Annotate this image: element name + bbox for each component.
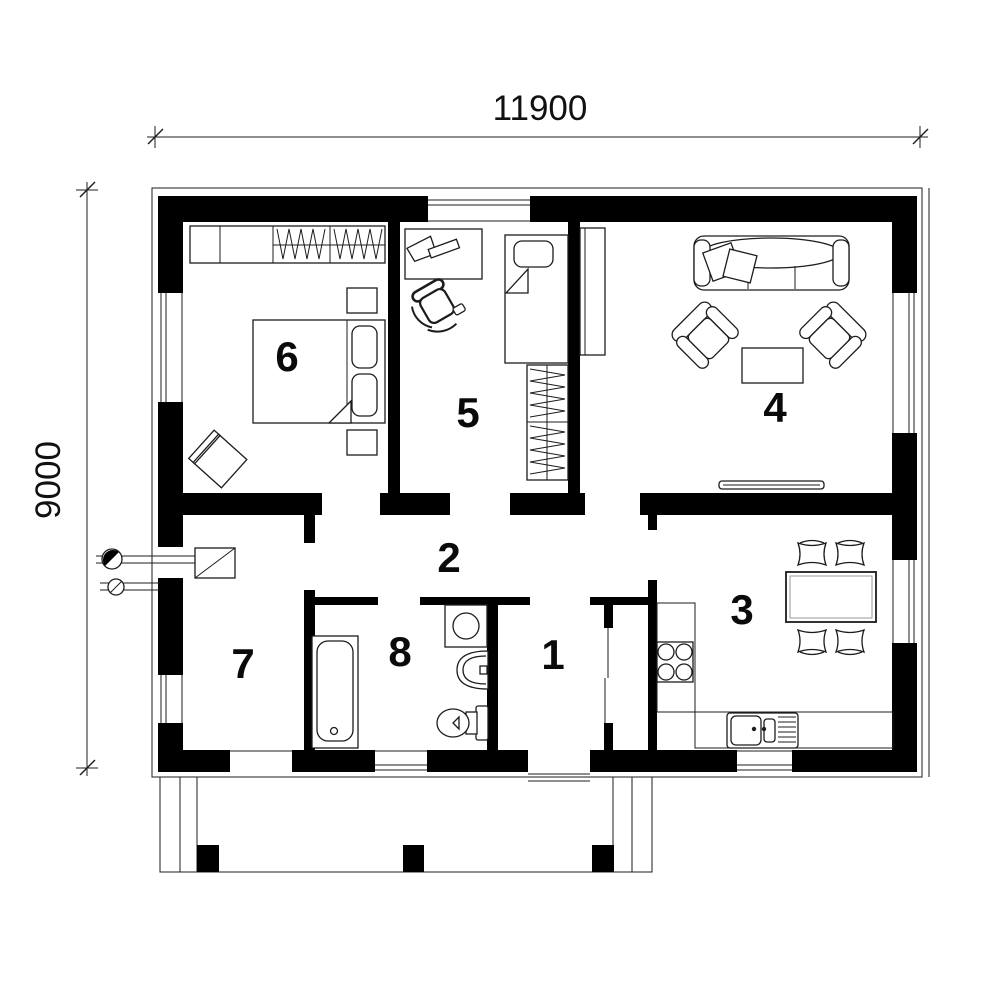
desk xyxy=(405,221,482,279)
room-label-2: 2 xyxy=(437,534,460,581)
window-right-room4 xyxy=(893,293,914,433)
sofa-pillow xyxy=(723,249,757,283)
window-bottom-room3 xyxy=(737,751,792,770)
double-bed xyxy=(253,320,385,423)
toilet xyxy=(437,706,488,740)
armchair-left xyxy=(668,298,741,371)
room-label-8: 8 xyxy=(388,628,411,675)
window-left-room6 xyxy=(161,293,182,402)
window-left-room7 xyxy=(161,675,182,723)
wall-room5-room4 xyxy=(568,222,580,493)
dimension-left: 9000 xyxy=(29,182,98,776)
nightstand xyxy=(347,288,377,313)
washbasin xyxy=(457,651,488,689)
armchair-right xyxy=(797,298,870,371)
boiler xyxy=(195,548,235,578)
closet-door-leaf xyxy=(605,628,608,723)
dining-chair xyxy=(836,630,864,655)
sofa xyxy=(694,236,849,290)
dimension-top: 11900 xyxy=(147,89,928,148)
tv xyxy=(719,481,824,489)
porch xyxy=(160,777,652,872)
room-label-7: 7 xyxy=(231,640,254,687)
room-label-3: 3 xyxy=(730,586,753,633)
dining-chair xyxy=(798,630,826,655)
porch-post xyxy=(403,845,424,872)
dining-chair xyxy=(798,541,826,566)
porch-post xyxy=(592,845,614,872)
window-bottom-room8 xyxy=(375,751,427,770)
wardrobe-room6 xyxy=(190,226,385,263)
dining-chair xyxy=(836,541,864,566)
washing-machine xyxy=(445,605,487,647)
window-right-room3 xyxy=(893,560,914,643)
tall-cabinet xyxy=(580,228,605,355)
room-label-4: 4 xyxy=(763,384,787,431)
chair-room6 xyxy=(189,430,247,488)
dining-table xyxy=(786,572,876,622)
floor-plan-page: 11900 9000 xyxy=(0,0,1000,1000)
coffee-table xyxy=(742,348,803,383)
room-label-1: 1 xyxy=(541,631,564,678)
kitchen-sink xyxy=(727,713,798,748)
stove xyxy=(657,642,693,682)
dimension-label-height: 9000 xyxy=(29,441,68,519)
floor-plan-drawing: 11900 9000 xyxy=(0,0,1000,1000)
nightstand xyxy=(347,430,377,455)
office-chair xyxy=(405,275,470,341)
porch-post xyxy=(197,845,219,872)
single-bed xyxy=(505,235,568,363)
wall-room6-room5 xyxy=(388,222,400,493)
window-top-room5 xyxy=(428,200,530,221)
room-label-6: 6 xyxy=(275,333,298,380)
bathtub xyxy=(312,636,358,748)
room-label-5: 5 xyxy=(456,389,479,436)
dimension-label-width: 11900 xyxy=(493,89,588,128)
wardrobe-room5 xyxy=(527,365,568,480)
